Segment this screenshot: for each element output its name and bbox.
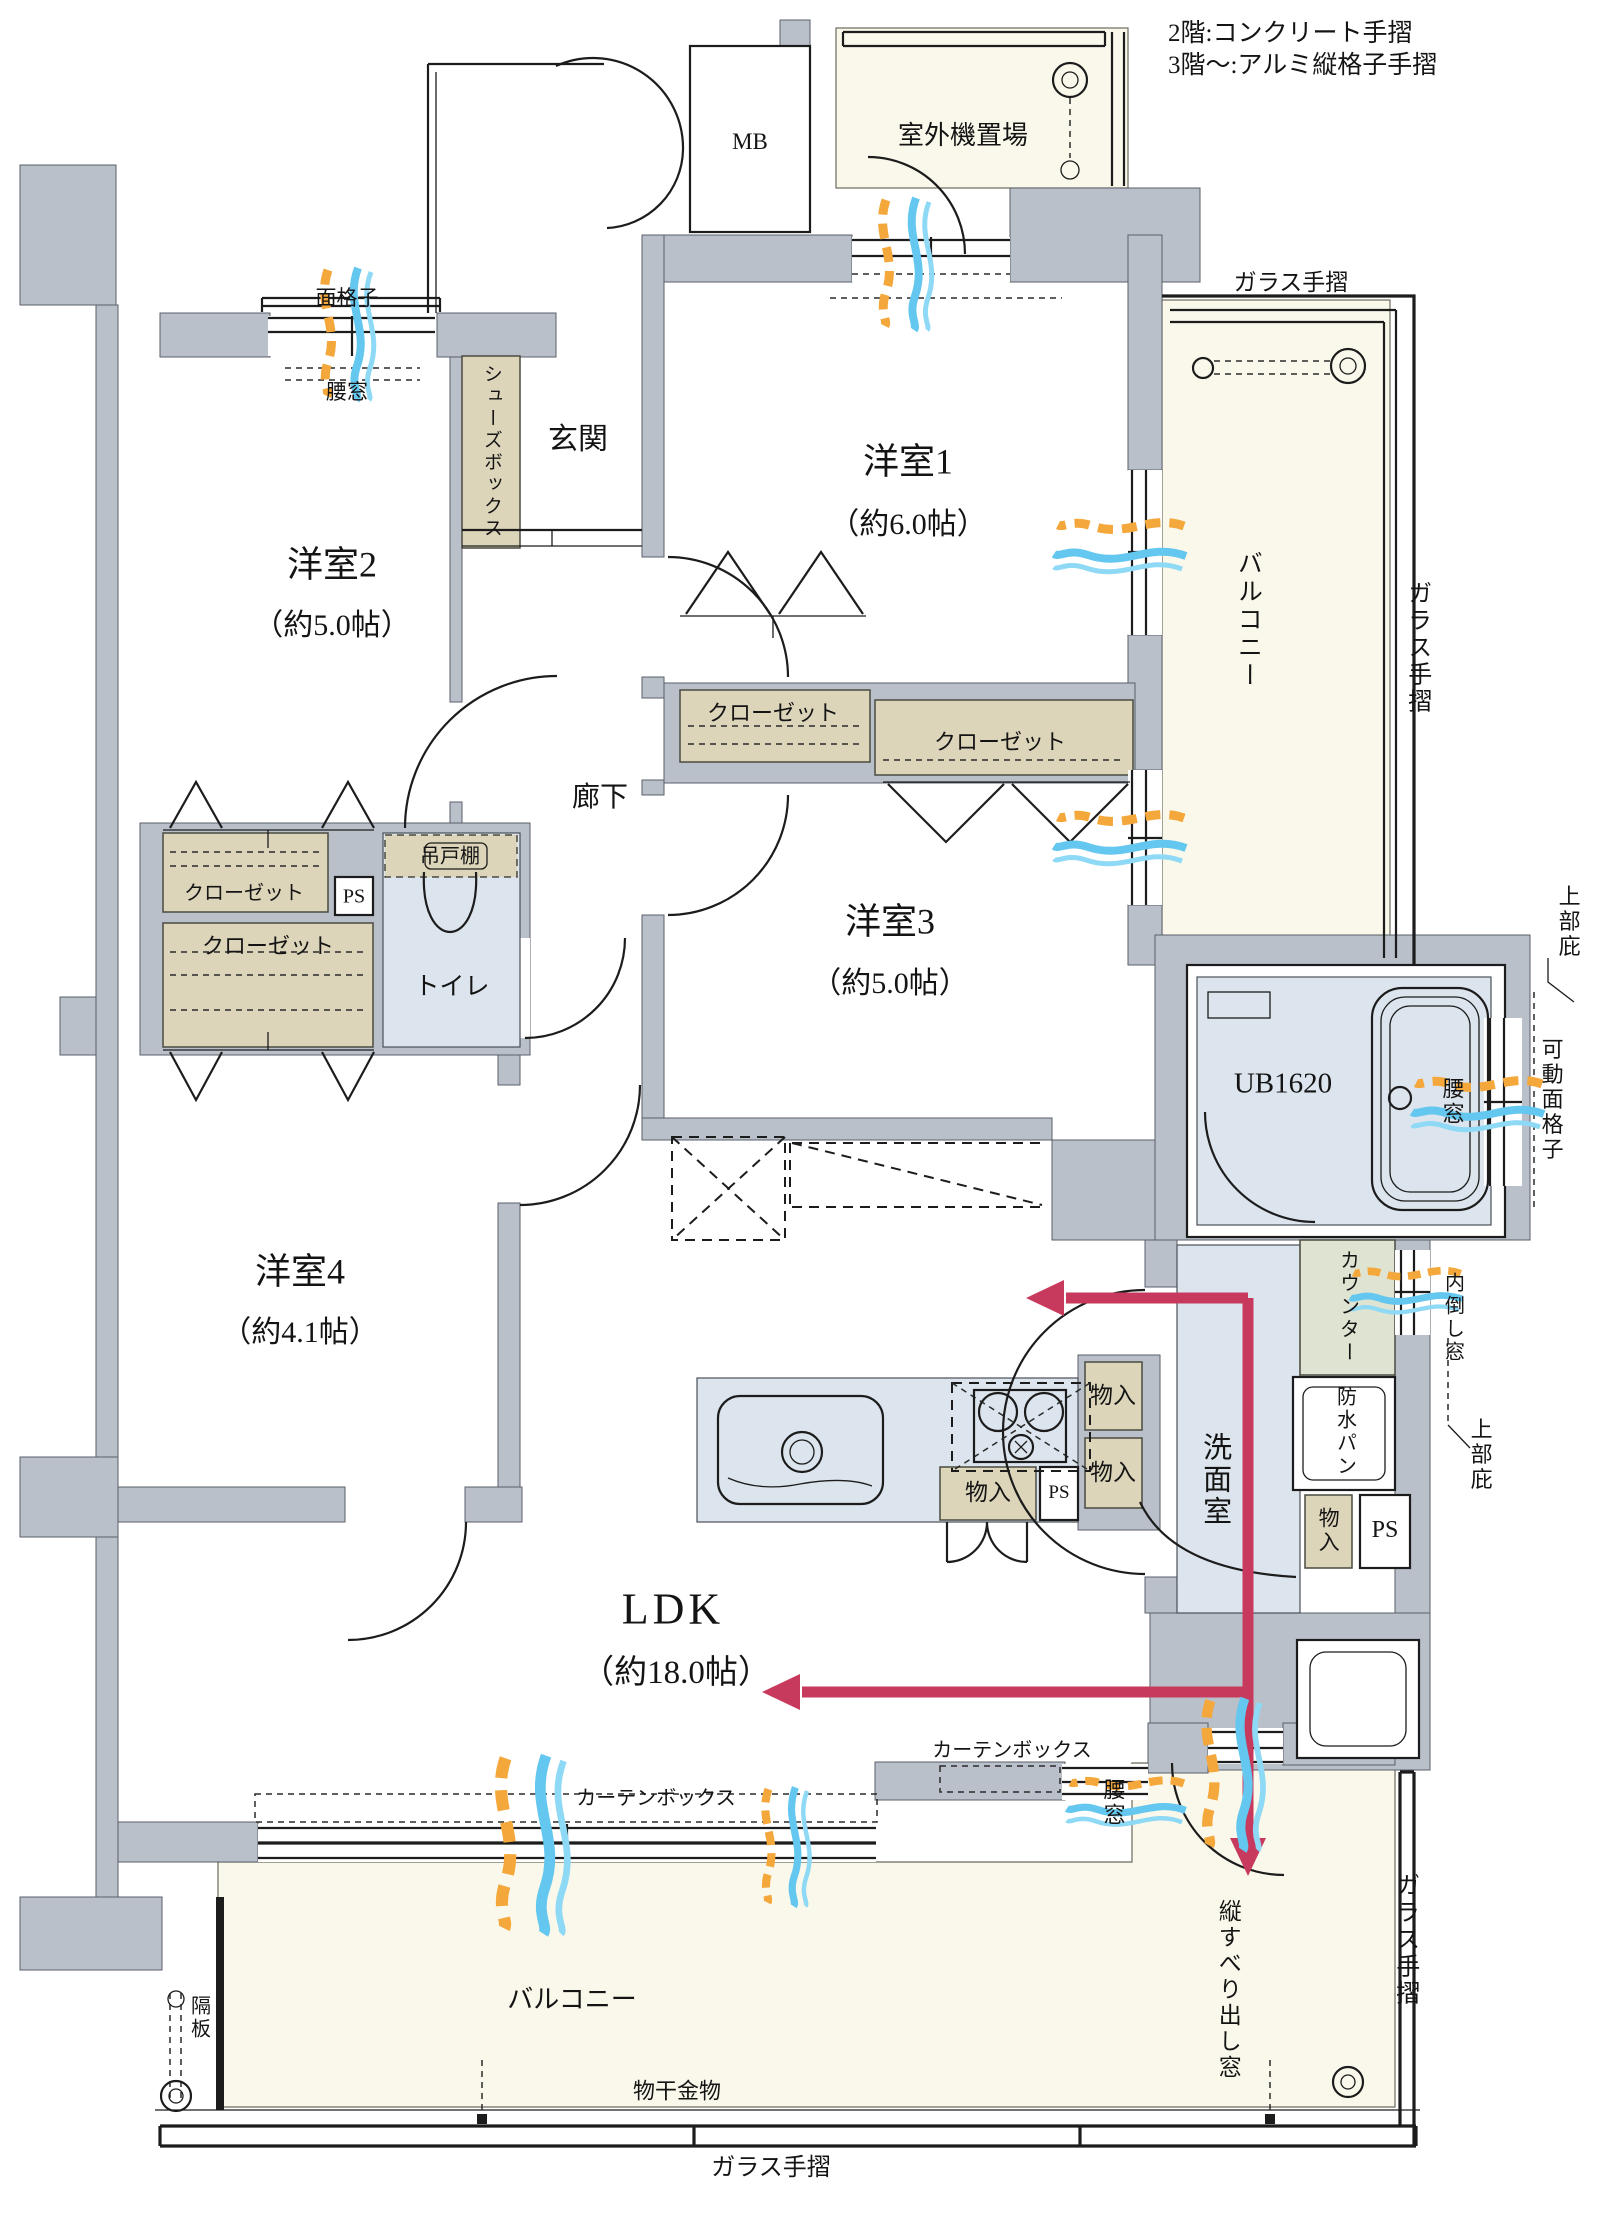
label-bath-unit: UB1620 <box>1234 1067 1332 1100</box>
label-closet-west4: クローゼット <box>202 933 334 958</box>
label-vertical-casement: 縦すべり出し窓 <box>1214 1899 1240 2081</box>
label-toilet: トイレ <box>414 974 489 1003</box>
label-ldk-name: LDK <box>622 1585 724 1636</box>
label-shoes-box: シューズボックス <box>480 364 502 540</box>
label-meter-box: MB <box>732 129 768 155</box>
label-partition-board: 隔板 <box>187 1995 210 2041</box>
label-western1-size: （約6.0帖） <box>829 508 987 543</box>
label-storage-right-2: 物入 <box>1090 1460 1136 1486</box>
outdoor-unit-area <box>836 28 1128 188</box>
label-balcony-south: バルコニー <box>507 1985 636 2015</box>
label-western2-name: 洋室2 <box>287 544 377 585</box>
label-western4-name: 洋室4 <box>255 1251 345 1292</box>
washing-machine <box>1297 1640 1419 1758</box>
label-western2-size: （約5.0帖） <box>253 609 411 644</box>
label-closet-west3: クローゼット <box>934 729 1066 754</box>
label-glass-handrail-east: ガラス手摺 <box>1402 581 1430 716</box>
label-ldk-size: （約18.0帖） <box>581 1655 771 1693</box>
label-glass-handrail-bottom: ガラス手摺 <box>711 2155 831 2183</box>
label-storage-right-1: 物入 <box>1090 1383 1136 1409</box>
label-closet-west2: クローゼット <box>184 883 304 906</box>
label-waterproof-pan: 防水パン <box>1333 1386 1356 1478</box>
label-washroom: 洗面室 <box>1197 1432 1230 1528</box>
label-hallway: 廊下 <box>572 782 628 814</box>
note-floor2: 2階:コンクリート手摺 <box>1168 20 1412 49</box>
label-upper-eaves-2: 上部庇 <box>1467 1418 1492 1493</box>
label-entrance: 玄関 <box>548 423 608 458</box>
label-counter: カウンター <box>1336 1250 1359 1365</box>
label-lattice: 面格子 <box>316 286 379 310</box>
label-ps-2: PS <box>1372 1517 1399 1545</box>
label-inward-window: 内倒し窓 <box>1441 1272 1464 1364</box>
label-western3-size: （約5.0帖） <box>811 967 969 1002</box>
label-western1-name: 洋室1 <box>863 441 953 482</box>
label-waist-window-se: 腰窓 <box>1100 1778 1125 1828</box>
note-floor3: 3階〜:アルミ縦格子手摺 <box>1168 52 1437 81</box>
label-western4-size: （約4.1帖） <box>221 1316 379 1351</box>
label-curtain-box-2: カーテンボックス <box>576 1788 735 1811</box>
label-storage-kitchen: 物入 <box>965 1480 1011 1506</box>
label-balcony-east: バルコニー <box>1233 550 1262 690</box>
label-glass-handrail-top: ガラス手摺 <box>1234 270 1349 296</box>
label-closet-west1: クローゼット <box>707 700 839 725</box>
label-glass-handrail-se: ガラス手摺 <box>1390 1873 1418 2008</box>
label-movable-lattice: 可動面格子 <box>1538 1038 1563 1163</box>
label-waist-window-nw: 腰窓 <box>326 380 368 404</box>
floorplan-page: 2階:コンクリート手摺 3階〜:アルミ縦格子手摺 室外機置場 MB ガラス手摺 … <box>0 0 1600 2230</box>
label-storage-washroom: 物入 <box>1316 1507 1340 1555</box>
label-curtain-box-1: カーテンボックス <box>932 1740 1091 1763</box>
balcony-east <box>1162 300 1390 960</box>
label-outdoor-unit: 室外機置場 <box>898 121 1028 151</box>
label-laundry-hardware: 物干金物 <box>633 2078 721 2103</box>
label-waist-window-bath: 腰窓 <box>1439 1077 1464 1127</box>
label-western3-name: 洋室3 <box>845 901 935 942</box>
label-ps-1: PS <box>343 886 365 909</box>
label-ps-3: PS <box>1048 1482 1069 1504</box>
floorplan-drawing <box>0 0 1600 2230</box>
label-hanging-cupboard: 吊戸棚 <box>420 846 480 869</box>
label-upper-eaves-1: 上部庇 <box>1555 885 1580 960</box>
